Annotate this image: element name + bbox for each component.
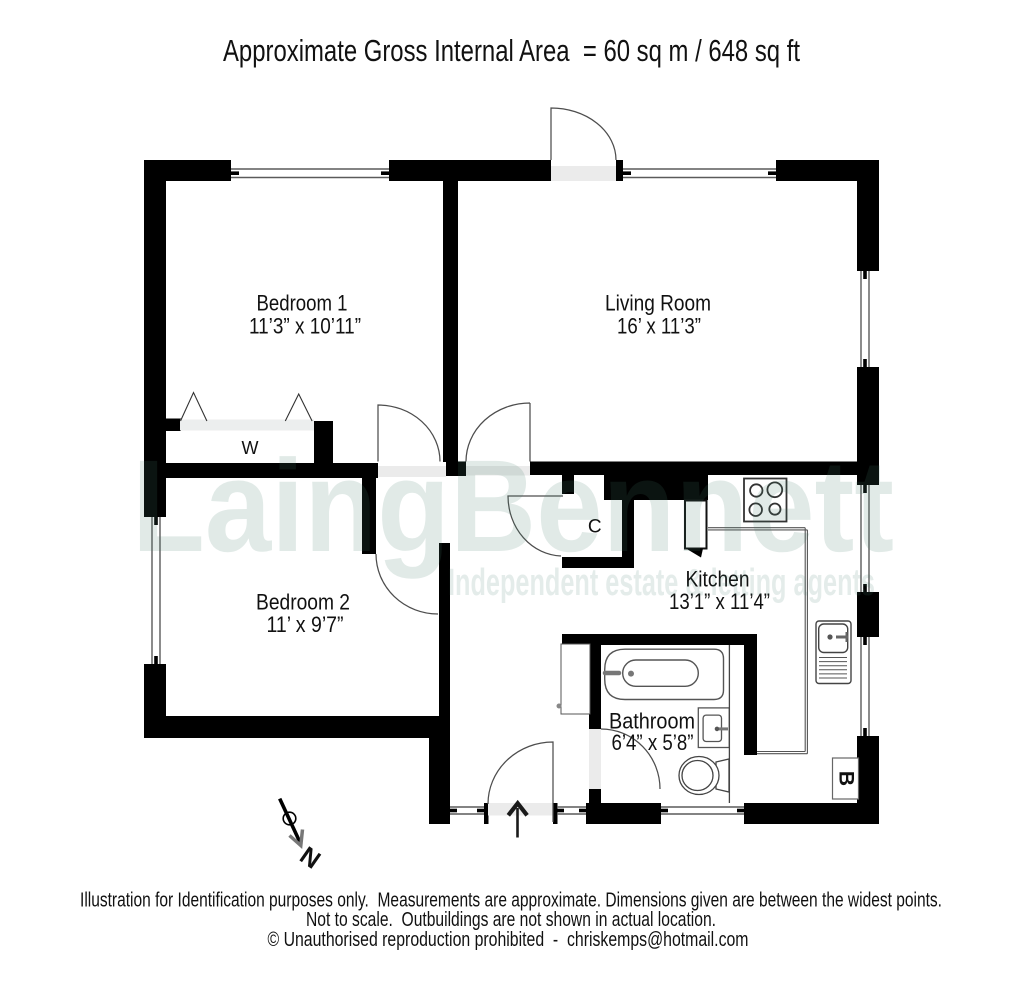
- svg-text:B: B: [835, 771, 858, 786]
- svg-text:© Unauthorised reproduction pr: © Unauthorised reproduction prohibited -…: [268, 928, 749, 951]
- svg-text:Bedroom 2: Bedroom 2: [256, 590, 350, 615]
- svg-text:Independent estate & letting a: Independent estate & letting agents: [448, 562, 875, 604]
- svg-text:16’ x 11’3”: 16’ x 11’3”: [617, 314, 701, 339]
- svg-text:11’3” x 10’11”: 11’3” x 10’11”: [249, 314, 361, 339]
- svg-text:Living Room: Living Room: [605, 291, 711, 316]
- svg-text:11’ x 9’7”: 11’ x 9’7”: [267, 612, 344, 637]
- svg-text:LaingBennett: LaingBennett: [132, 432, 894, 579]
- svg-text:Bedroom 1: Bedroom 1: [257, 291, 348, 316]
- svg-text:6’4” x 5’8”: 6’4” x 5’8”: [612, 730, 694, 755]
- svg-text:Approximate Gross Internal Are: Approximate Gross Internal Area = 60 sq …: [223, 33, 800, 68]
